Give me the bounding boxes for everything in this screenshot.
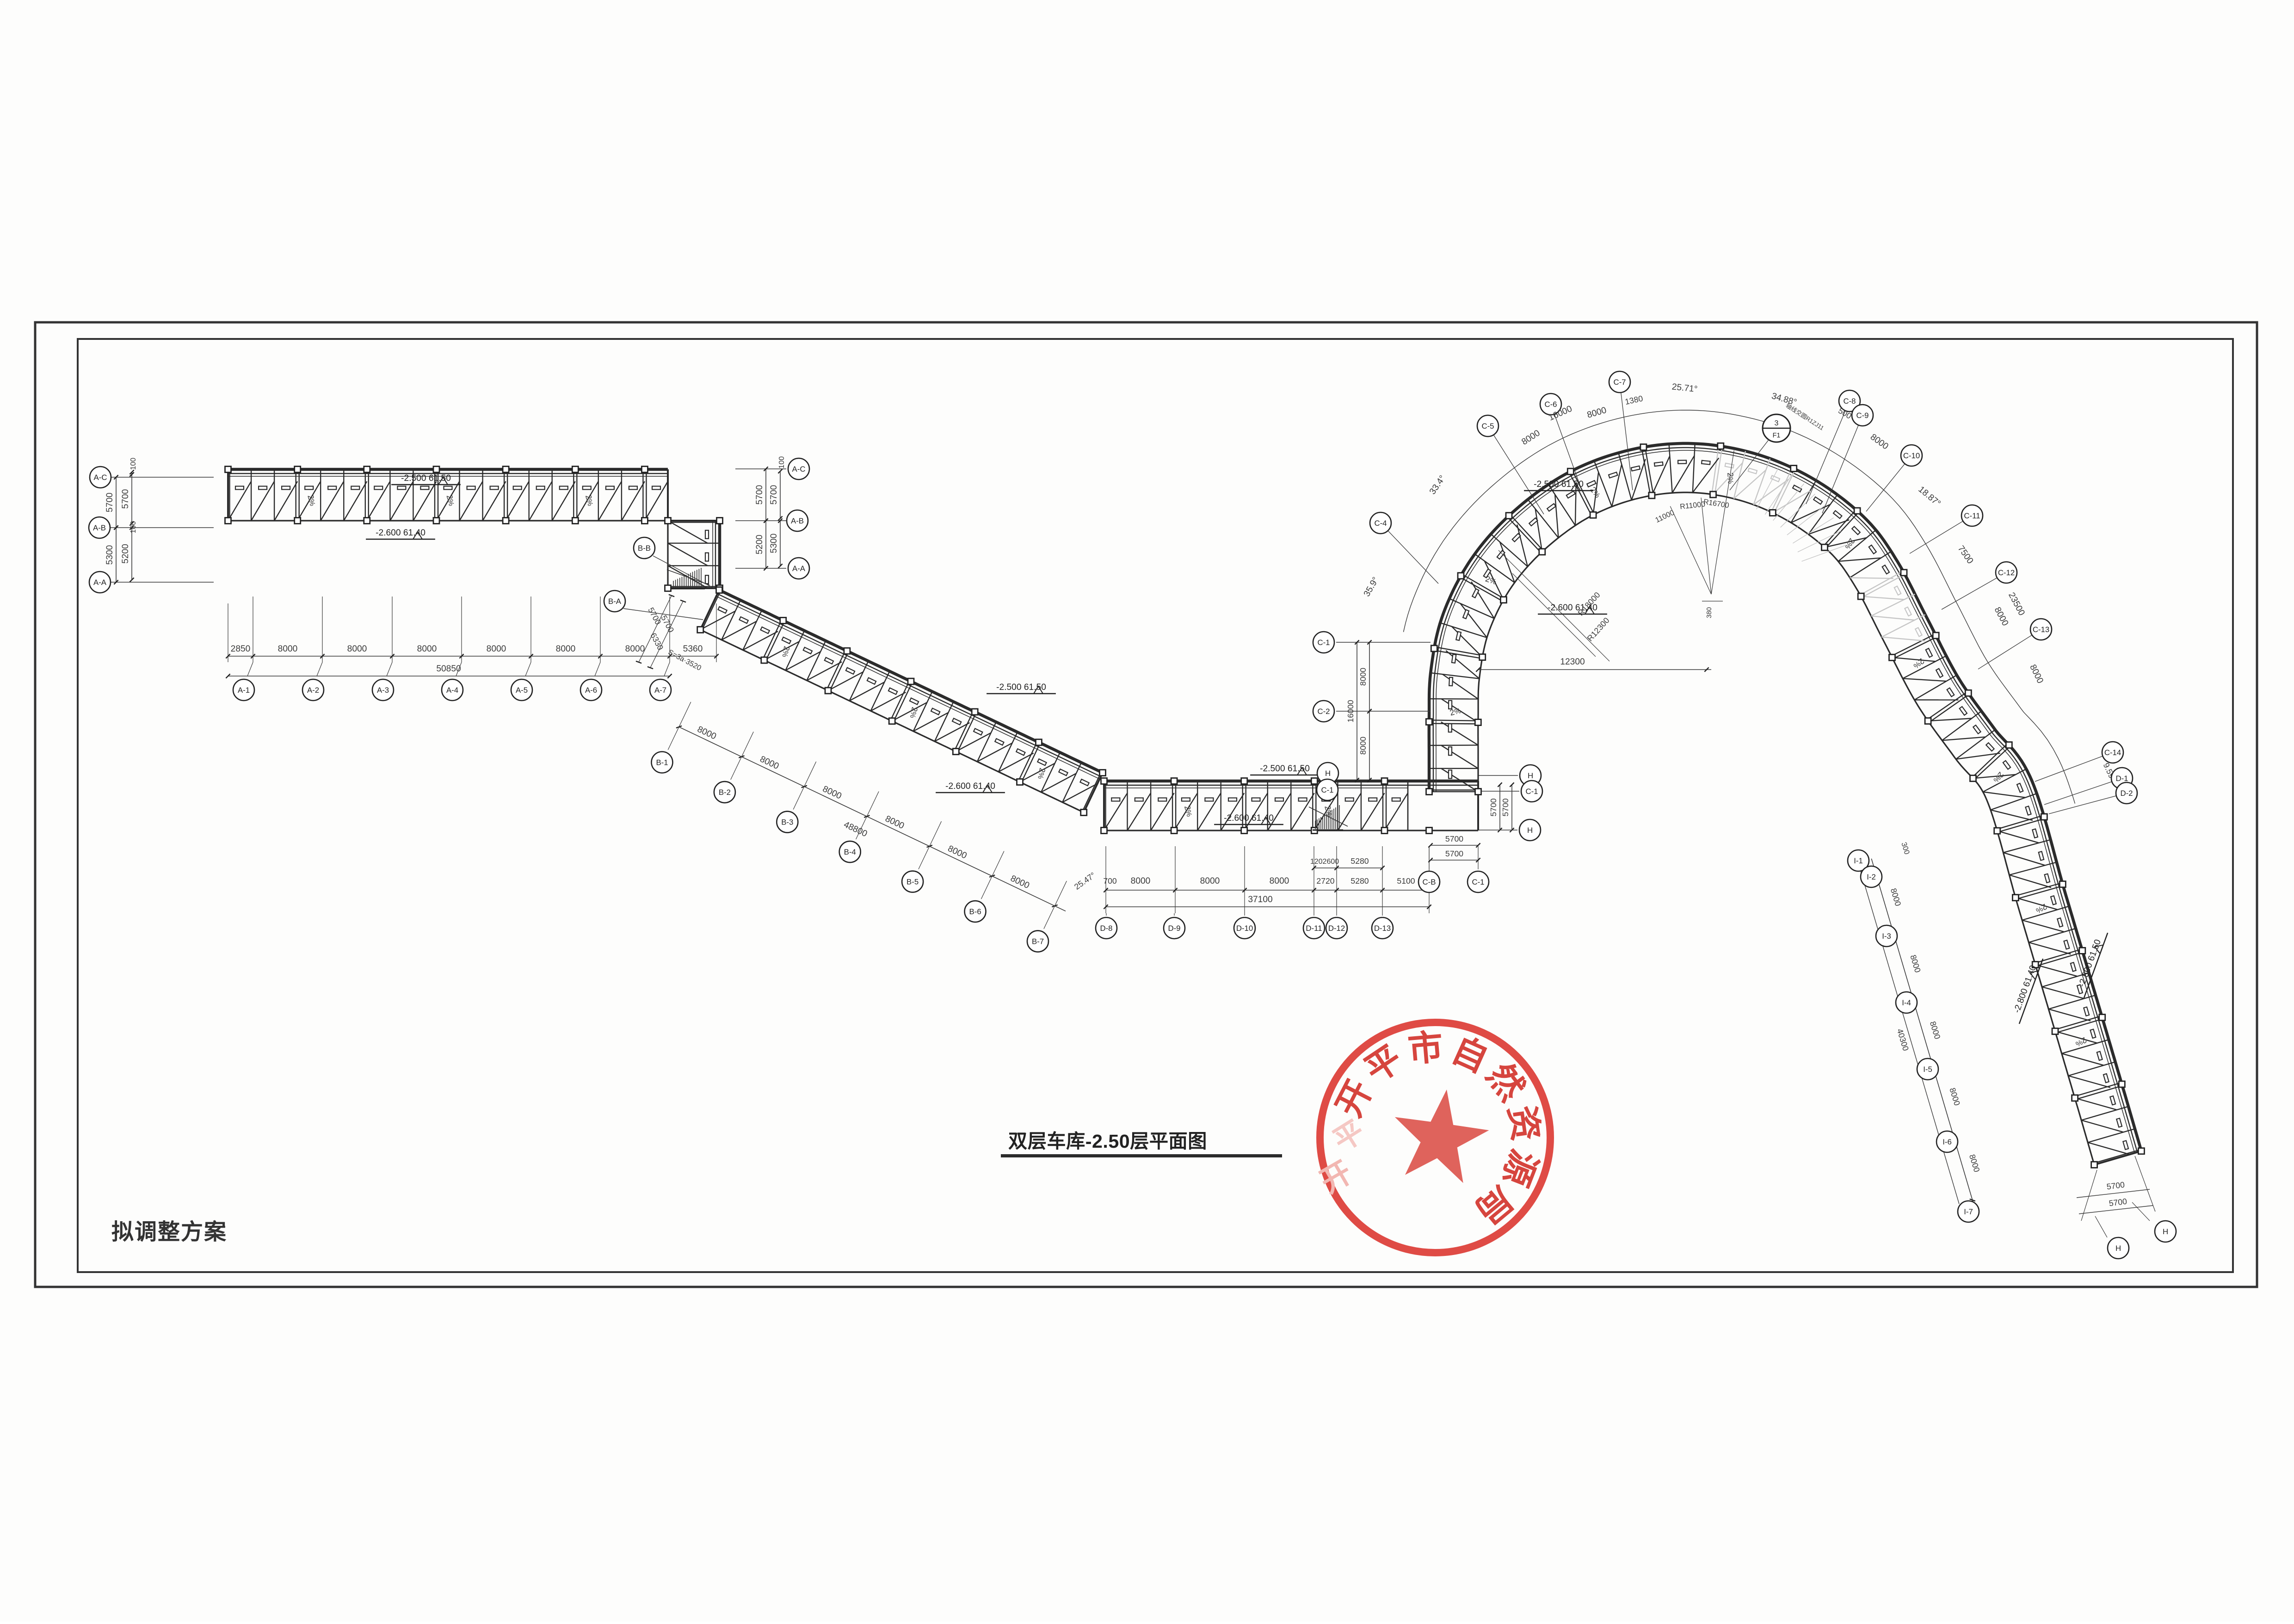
svg-text:A-5: A-5 [516, 686, 528, 695]
svg-text:5300: 5300 [105, 545, 115, 565]
svg-text:8000: 8000 [1270, 876, 1289, 886]
svg-text:2%: 2% [1726, 472, 1736, 484]
svg-text:C-9: C-9 [1856, 411, 1868, 420]
svg-text:I-4: I-4 [1902, 998, 1911, 1007]
svg-text:C-1: C-1 [1321, 786, 1333, 794]
svg-text:1202600: 1202600 [1310, 858, 1339, 866]
svg-text:C-4: C-4 [1374, 519, 1387, 528]
svg-text:100: 100 [778, 456, 786, 469]
svg-text:2720: 2720 [1316, 876, 1334, 886]
svg-text:8000: 8000 [1200, 876, 1220, 886]
svg-text:C-10: C-10 [1903, 451, 1920, 460]
svg-text:A-B: A-B [791, 517, 804, 525]
svg-text:A-2: A-2 [307, 686, 319, 695]
svg-text:A-B: A-B [93, 523, 106, 532]
svg-text:C-B: C-B [1423, 878, 1436, 886]
svg-text:B-4: B-4 [844, 848, 856, 856]
svg-text:5200: 5200 [121, 544, 130, 564]
svg-text:C-8: C-8 [1843, 397, 1856, 406]
svg-text:C-1: C-1 [1525, 787, 1538, 796]
svg-text:8000: 8000 [417, 644, 437, 654]
svg-text:5280: 5280 [1350, 876, 1369, 886]
svg-text:拟调整方案: 拟调整方案 [111, 1220, 227, 1244]
svg-text:5200: 5200 [755, 535, 765, 554]
svg-text:F1: F1 [1773, 432, 1781, 439]
svg-text:8000: 8000 [1358, 737, 1368, 755]
svg-text:5700: 5700 [769, 485, 779, 505]
svg-text:C-12: C-12 [1998, 568, 2015, 577]
svg-text:I-6: I-6 [1942, 1138, 1952, 1146]
svg-text:C-13: C-13 [2033, 625, 2049, 634]
svg-text:C-1: C-1 [1472, 878, 1484, 886]
svg-text:C-5: C-5 [1481, 422, 1494, 431]
svg-text:5100: 5100 [1397, 876, 1415, 886]
svg-text:A-A: A-A [93, 578, 107, 587]
svg-text:D-12: D-12 [1328, 924, 1345, 933]
svg-text:C-6: C-6 [1544, 400, 1557, 409]
svg-text:A-A: A-A [792, 564, 806, 573]
svg-text:8000: 8000 [347, 644, 367, 654]
svg-text:D-1: D-1 [2115, 774, 2128, 783]
svg-text:B-5: B-5 [906, 877, 919, 886]
svg-text:I-3: I-3 [1882, 932, 1891, 941]
svg-text:B-1: B-1 [656, 758, 668, 767]
svg-text:C-14: C-14 [2104, 748, 2121, 757]
svg-text:5700: 5700 [1489, 798, 1498, 816]
svg-text:2850: 2850 [231, 644, 251, 654]
svg-text:100: 100 [129, 458, 137, 470]
svg-text:I-2: I-2 [1867, 873, 1876, 881]
svg-text:8000: 8000 [556, 644, 576, 654]
svg-text:5700: 5700 [121, 489, 130, 509]
svg-text:5700: 5700 [1501, 798, 1510, 816]
svg-text:5360: 5360 [683, 644, 703, 654]
svg-text:5700: 5700 [105, 492, 115, 512]
svg-text:H: H [1325, 769, 1331, 778]
svg-text:8000: 8000 [278, 644, 298, 654]
svg-text:I-1: I-1 [1854, 856, 1863, 865]
svg-text:H: H [2163, 1227, 2168, 1236]
svg-text:H: H [1527, 826, 1533, 835]
svg-text:D-9: D-9 [1168, 924, 1180, 933]
svg-text:16000: 16000 [1346, 700, 1355, 722]
svg-text:12300: 12300 [1560, 657, 1585, 667]
svg-text:A-C: A-C [792, 465, 806, 474]
svg-text:B-6: B-6 [969, 907, 981, 916]
svg-text:8000: 8000 [1131, 876, 1151, 886]
svg-text:D-2: D-2 [2120, 789, 2133, 798]
svg-text:A-4: A-4 [446, 686, 458, 695]
svg-text:37100: 37100 [1248, 895, 1272, 904]
svg-text:B-3: B-3 [781, 818, 793, 826]
svg-text:380: 380 [1706, 607, 1713, 618]
svg-text:5700: 5700 [1445, 834, 1463, 843]
svg-text:700: 700 [1103, 876, 1117, 886]
svg-text:B-B: B-B [638, 544, 651, 553]
svg-text:3: 3 [1775, 419, 1779, 427]
svg-text:8000: 8000 [625, 644, 645, 654]
svg-text:H: H [1528, 771, 1533, 780]
svg-text:B-2: B-2 [719, 788, 731, 797]
svg-text:5300: 5300 [769, 534, 779, 554]
svg-text:B-7: B-7 [1032, 937, 1044, 946]
svg-text:5700: 5700 [1445, 849, 1463, 858]
svg-text:H: H [2115, 1244, 2121, 1253]
svg-text:B-A: B-A [608, 597, 622, 606]
svg-text:A-C: A-C [94, 473, 107, 482]
svg-text:C-2: C-2 [1317, 707, 1330, 716]
svg-text:A-3: A-3 [377, 686, 389, 695]
svg-text:5280: 5280 [1350, 856, 1369, 866]
svg-text:8000: 8000 [487, 644, 506, 654]
svg-text:A-6: A-6 [585, 686, 597, 695]
svg-text:A-1: A-1 [238, 686, 250, 695]
svg-text:D-8: D-8 [1100, 924, 1112, 933]
svg-text:双层车库-2.50层平面图: 双层车库-2.50层平面图 [1008, 1131, 1207, 1152]
svg-text:D-10: D-10 [1236, 924, 1253, 933]
svg-text:D-13: D-13 [1374, 924, 1391, 933]
svg-text:C-11: C-11 [1964, 511, 1980, 520]
svg-text:C-7: C-7 [1613, 378, 1626, 387]
svg-text:I-7: I-7 [1964, 1207, 1973, 1216]
svg-text:D-11: D-11 [1306, 924, 1322, 933]
svg-text:100: 100 [129, 521, 137, 534]
svg-text:5700: 5700 [755, 485, 765, 505]
svg-text:A-7: A-7 [654, 686, 666, 695]
svg-text:I-5: I-5 [1923, 1065, 1932, 1074]
svg-text:C-1: C-1 [1317, 638, 1330, 647]
svg-text:8000: 8000 [1358, 668, 1368, 686]
